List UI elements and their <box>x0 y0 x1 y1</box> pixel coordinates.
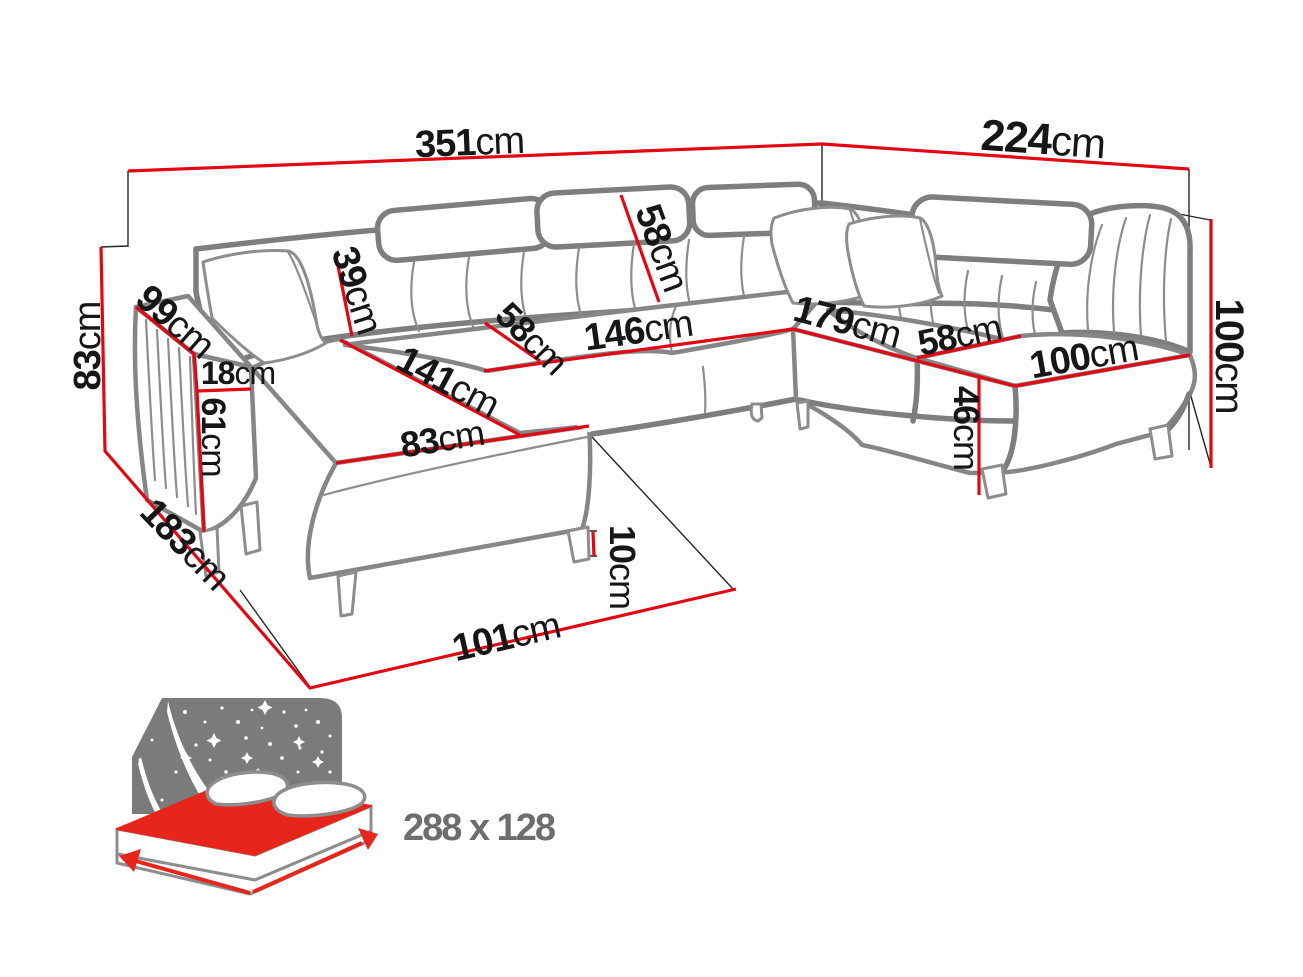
svg-text:224cm: 224cm <box>979 111 1107 169</box>
svg-text:61cm: 61cm <box>194 397 232 476</box>
svg-text:83cm: 83cm <box>67 302 109 391</box>
svg-text:100cm: 100cm <box>1207 298 1251 413</box>
svg-text:351cm: 351cm <box>414 120 525 166</box>
svg-text:288 x 128: 288 x 128 <box>403 807 555 849</box>
svg-text:10cm: 10cm <box>602 525 643 609</box>
svg-text:46cm: 46cm <box>946 386 987 470</box>
svg-text:18cm: 18cm <box>201 355 275 391</box>
